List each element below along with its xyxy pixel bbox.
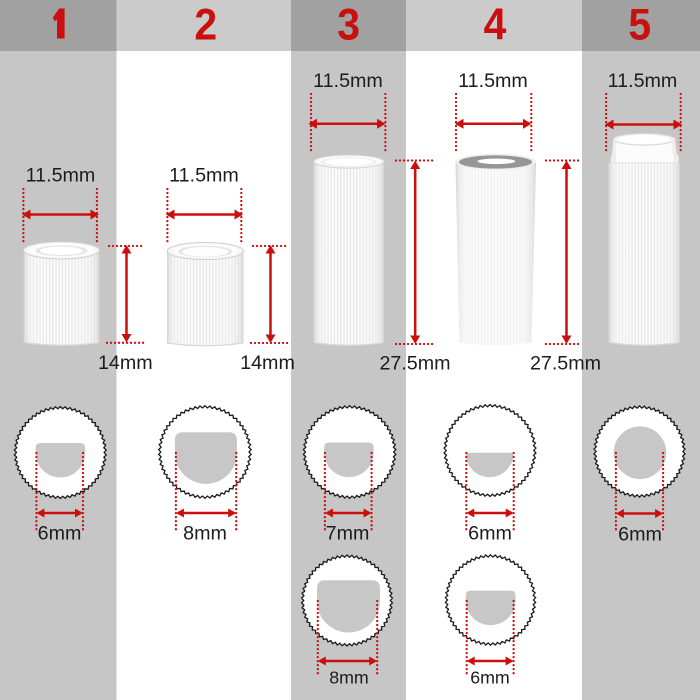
svg-text:11.5mm: 11.5mm bbox=[458, 70, 528, 92]
svg-text:6mm: 6mm bbox=[618, 524, 662, 546]
svg-text:6mm: 6mm bbox=[470, 668, 510, 688]
svg-text:11.5mm: 11.5mm bbox=[608, 70, 678, 92]
svg-text:6mm: 6mm bbox=[38, 523, 82, 545]
svg-text:5: 5 bbox=[628, 0, 651, 50]
svg-text:11.5mm: 11.5mm bbox=[169, 165, 239, 187]
svg-text:27.5mm: 27.5mm bbox=[530, 352, 601, 374]
svg-text:27.5mm: 27.5mm bbox=[379, 352, 450, 374]
svg-text:11.5mm: 11.5mm bbox=[313, 70, 383, 92]
svg-text:14mm: 14mm bbox=[98, 352, 153, 374]
svg-text:3: 3 bbox=[337, 0, 360, 50]
svg-text:2: 2 bbox=[194, 0, 217, 50]
svg-text:6mm: 6mm bbox=[468, 523, 512, 545]
svg-text:11.5mm: 11.5mm bbox=[26, 165, 96, 187]
svg-text:8mm: 8mm bbox=[183, 523, 227, 545]
svg-text:14mm: 14mm bbox=[240, 352, 295, 374]
svg-text:8mm: 8mm bbox=[329, 668, 369, 688]
svg-text:7mm: 7mm bbox=[326, 523, 370, 545]
svg-text:4: 4 bbox=[484, 0, 507, 50]
